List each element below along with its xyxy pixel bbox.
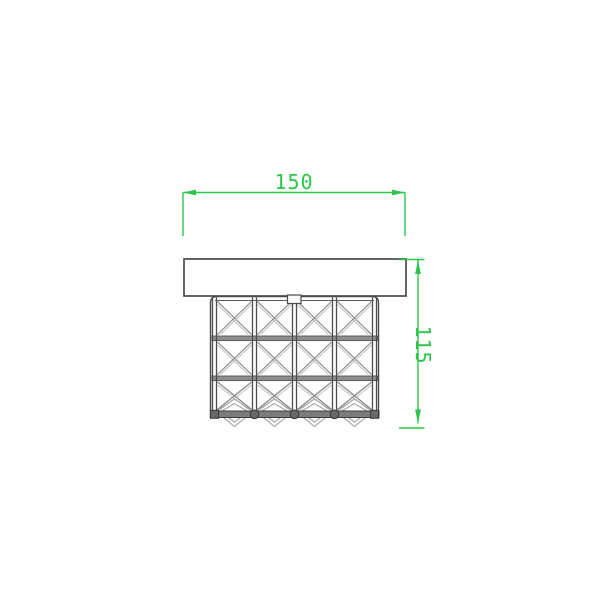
drawing-page: 150 [0,0,600,600]
grid-rail-2 [212,376,378,381]
height-dim-arrow-down [415,410,421,424]
grid-node-circle [290,410,299,419]
drawing-canvas: 150 [0,0,600,600]
grid-lattice [218,302,372,410]
top-plate-outline [184,259,406,296]
width-dim-arrow-left [183,190,196,196]
mounting-tab [288,295,302,304]
grid-rail-1 [212,336,378,341]
grid-node-circle [250,410,259,419]
grid-node-square [211,410,219,418]
top-plate [184,259,406,296]
grid-node-circle [330,410,339,419]
crystal-grid [211,295,380,427]
height-dim-arrow-up [415,260,421,274]
width-dimension: 150 [183,170,405,236]
width-dim-label: 150 [274,170,313,194]
height-dim-label: 115 [411,325,435,364]
width-dim-arrow-right [392,190,405,196]
grid-node-square [371,410,379,418]
